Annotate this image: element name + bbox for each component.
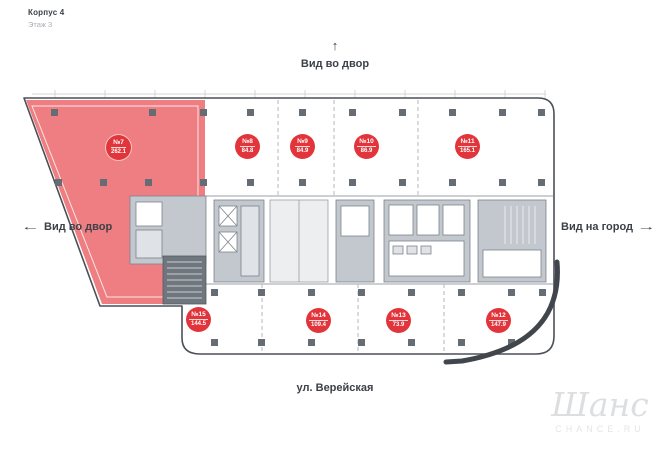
unit-number: №8: [240, 138, 255, 147]
unit-area: 73.9: [393, 321, 405, 329]
unit-area: 109.4: [311, 321, 326, 329]
unit-area: 84.9: [297, 147, 309, 155]
direction-right-label: Вид на город: [561, 221, 633, 233]
plan-header: Корпус 4 Этаж 3: [28, 8, 64, 29]
unit-badge-11[interactable]: №11 165.1: [455, 134, 480, 159]
unit-area: 165.1: [460, 147, 475, 155]
unit-badge-9[interactable]: №9 84.9: [290, 134, 315, 159]
unit-number: №15: [189, 311, 207, 320]
unit-badge-13[interactable]: №13 73.9: [386, 308, 411, 333]
floorplan-page: №7 262.1 №8 84.8 №9 84.9 №10 86.9 №11 16…: [0, 0, 670, 475]
direction-top-label: Вид во двор: [301, 58, 369, 70]
unit-badge-7[interactable]: №7 262.1: [106, 135, 131, 160]
unit-badge-8[interactable]: №8 84.8: [235, 134, 260, 159]
direction-left-label: Вид во двор: [44, 221, 112, 233]
unit-area: 147.9: [491, 321, 506, 329]
unit-badge-12[interactable]: №12 147.9: [486, 308, 511, 333]
direction-right: Вид на город →: [561, 221, 652, 233]
unit-number: №12: [489, 312, 507, 321]
street-label: ул. Верейская: [0, 382, 670, 394]
arrow-left-icon: ←: [21, 221, 40, 233]
dimension-line: [32, 90, 546, 98]
unit-area: 86.9: [361, 147, 373, 155]
floor-plan: [0, 0, 670, 475]
unit-number: №13: [389, 312, 407, 321]
floor-subtitle: Этаж 3: [28, 20, 64, 29]
unit-number: №10: [357, 138, 375, 147]
direction-top: ↑ Вид во двор: [0, 40, 670, 70]
arrow-up-icon: ↑: [0, 40, 670, 52]
unit-number: №14: [309, 312, 327, 321]
unit-badge-14[interactable]: №14 109.4: [306, 308, 331, 333]
unit-area: 144.5: [191, 320, 206, 328]
unit-badge-10[interactable]: №10 86.9: [354, 134, 379, 159]
arrow-right-icon: →: [637, 221, 656, 233]
unit-badge-15[interactable]: №15 144.5: [186, 307, 211, 332]
direction-left: ← Вид во двор: [25, 221, 112, 233]
unit-number: №9: [295, 138, 310, 147]
unit-number: №11: [458, 138, 476, 147]
unit-area: 262.1: [111, 148, 126, 156]
unit-area: 84.8: [242, 147, 254, 155]
unit-number: №7: [111, 139, 126, 148]
building-title: Корпус 4: [28, 8, 64, 17]
